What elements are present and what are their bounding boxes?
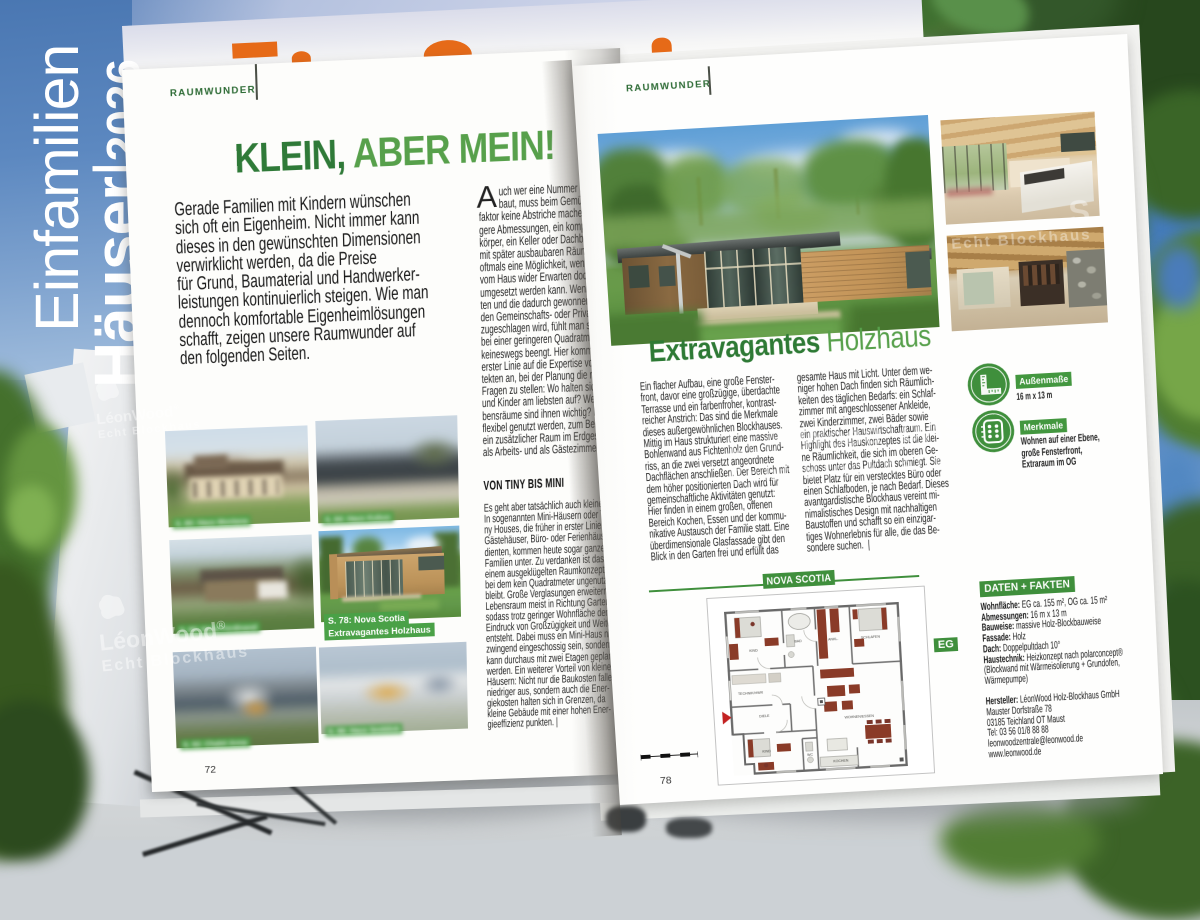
svg-text:ANKL.: ANKL. bbox=[828, 637, 839, 641]
svg-text:KIND: KIND bbox=[749, 649, 758, 653]
svg-text:WC: WC bbox=[807, 753, 813, 757]
svg-text:BAD: BAD bbox=[794, 639, 802, 643]
svg-text:KIND: KIND bbox=[762, 749, 771, 753]
svg-text:DIELE: DIELE bbox=[759, 714, 770, 718]
